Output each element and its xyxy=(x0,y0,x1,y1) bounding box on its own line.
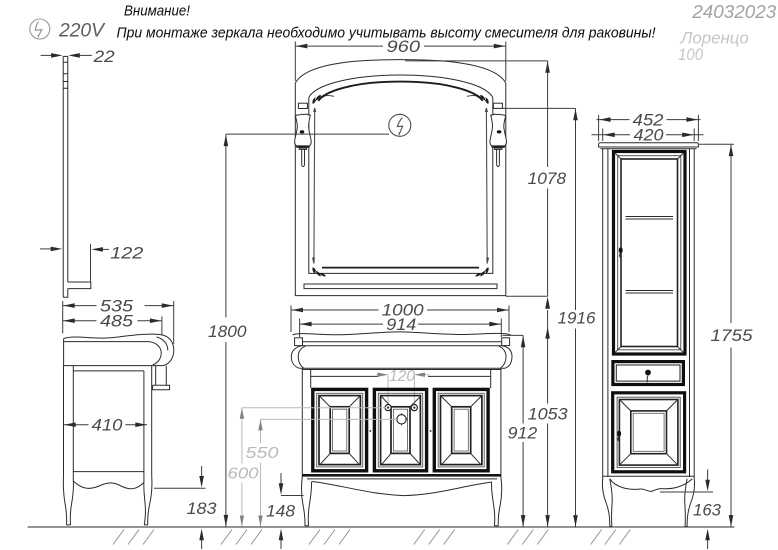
svg-text:24032023: 24032023 xyxy=(691,2,776,22)
svg-text:600: 600 xyxy=(228,466,259,483)
svg-text:960: 960 xyxy=(387,37,421,56)
svg-text:Лоренцо: Лоренцо xyxy=(680,30,749,48)
svg-text:22: 22 xyxy=(92,47,115,66)
svg-text:410: 410 xyxy=(92,415,124,434)
svg-text:485: 485 xyxy=(100,312,134,331)
svg-text:120: 120 xyxy=(389,368,415,385)
svg-text:1755: 1755 xyxy=(711,326,754,345)
svg-text:1078: 1078 xyxy=(528,169,567,188)
svg-text:1916: 1916 xyxy=(558,309,597,328)
svg-text:148: 148 xyxy=(266,502,296,521)
svg-text:914: 914 xyxy=(386,315,416,334)
svg-text:122: 122 xyxy=(110,243,144,262)
svg-text:1053: 1053 xyxy=(528,405,569,424)
svg-text:183: 183 xyxy=(187,499,218,518)
svg-text:912: 912 xyxy=(508,424,538,443)
svg-text:420: 420 xyxy=(634,126,665,145)
svg-text:100: 100 xyxy=(678,46,704,64)
svg-text:Внимание!: Внимание! xyxy=(124,4,190,20)
svg-text:220V: 220V xyxy=(58,21,106,42)
svg-text:163: 163 xyxy=(693,501,722,520)
svg-text:550: 550 xyxy=(246,445,279,462)
svg-text:1800: 1800 xyxy=(208,322,247,341)
